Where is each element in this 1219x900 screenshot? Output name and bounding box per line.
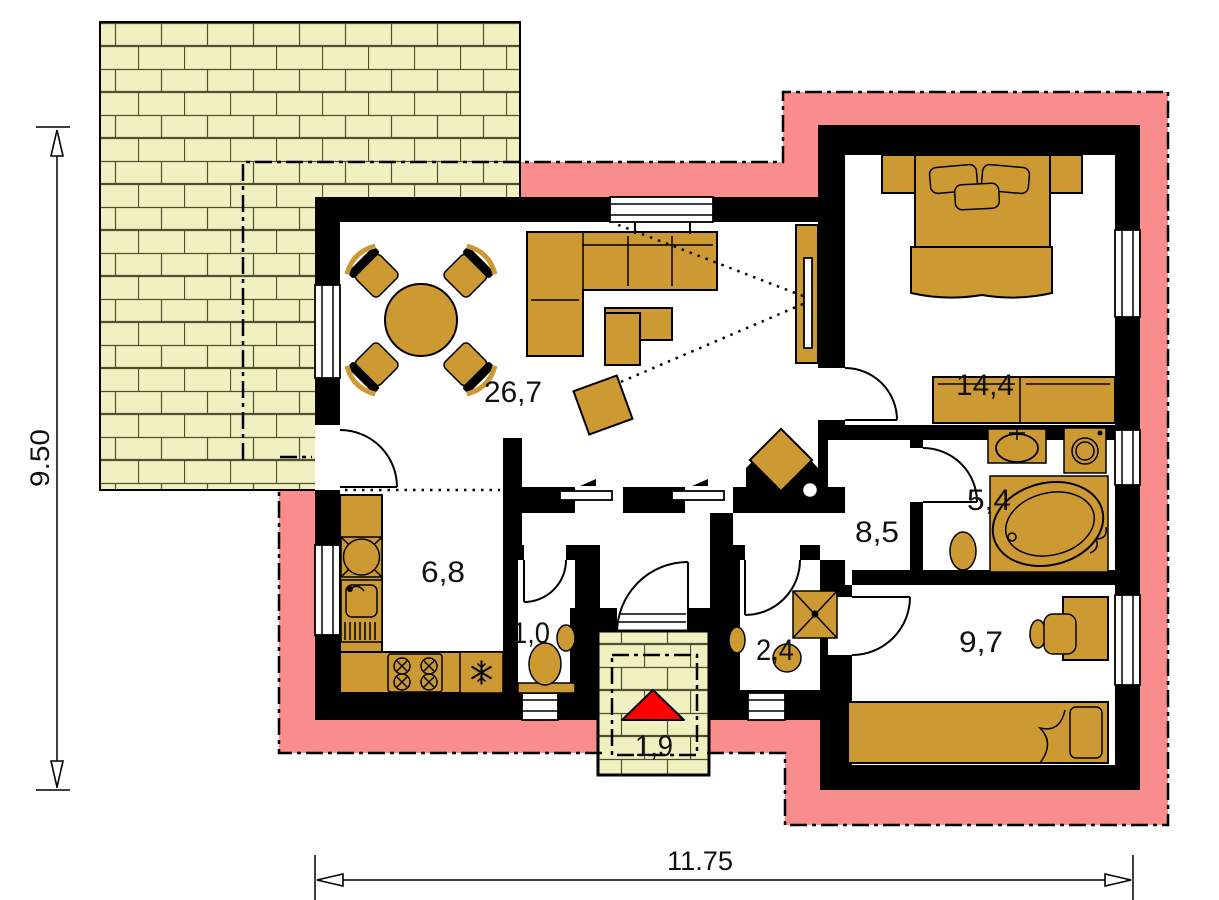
area-label-porch: 1,9 [635, 730, 673, 763]
dining-table-icon [385, 284, 457, 356]
dimension-vertical: 9.50 [25, 127, 70, 790]
utility-basin-icon [729, 627, 745, 653]
area-label-living: 26,7 [484, 376, 542, 409]
area-label-bedroom-second: 9,7 [959, 626, 1003, 659]
toilet-icon [950, 532, 976, 570]
vestibule-floor [600, 513, 710, 608]
kitchen-sink-icon [341, 580, 382, 642]
area-label-hall: 8,5 [855, 516, 899, 549]
window-wc-bottom [522, 693, 558, 720]
dimension-horizontal: 11.75 [315, 846, 1133, 900]
stove-icon [388, 654, 442, 692]
single-bed-icon [848, 702, 1108, 763]
wc-washbasin-icon [557, 625, 575, 651]
window-living-left [315, 285, 340, 378]
nightstand-icon [882, 155, 916, 193]
area-label-bathroom: 5,4 [967, 484, 1011, 517]
fridge-icon [460, 652, 503, 693]
double-bed-icon [911, 155, 1052, 298]
area-label-wc: 1,0 [512, 617, 550, 650]
dimension-height-label: 9.50 [25, 429, 55, 487]
window-utility-bottom [748, 693, 785, 720]
dimension-width-label: 11.75 [667, 846, 733, 876]
window-living-top [610, 197, 713, 222]
pillow-icon [1070, 707, 1102, 758]
window-bathroom-right [1115, 430, 1140, 485]
shower-icon [793, 591, 837, 638]
window-kitchen-left [315, 545, 340, 635]
nightstand-icon [1048, 155, 1082, 193]
floor-plan-page: 26,7 14,4 5,4 8,5 6,8 1,0 2,4 9,7 1,9 9.… [0, 0, 1219, 900]
washing-machine-icon [1064, 428, 1106, 473]
floor-plan-canvas: 26,7 14,4 5,4 8,5 6,8 1,0 2,4 9,7 1,9 9.… [0, 0, 1219, 900]
kitchen-round-sink-icon [341, 537, 382, 577]
window-bedroom-second-right [1115, 595, 1140, 685]
area-label-utility: 2,4 [756, 634, 794, 667]
flue-outlet-icon [803, 483, 818, 498]
window-bedroom-main-right [1115, 230, 1140, 317]
area-label-kitchen: 6,8 [421, 556, 465, 589]
washbasin-icon [988, 427, 1046, 463]
area-label-bedroom-main: 14,4 [956, 369, 1014, 402]
desk-chair-icon [1044, 614, 1076, 654]
